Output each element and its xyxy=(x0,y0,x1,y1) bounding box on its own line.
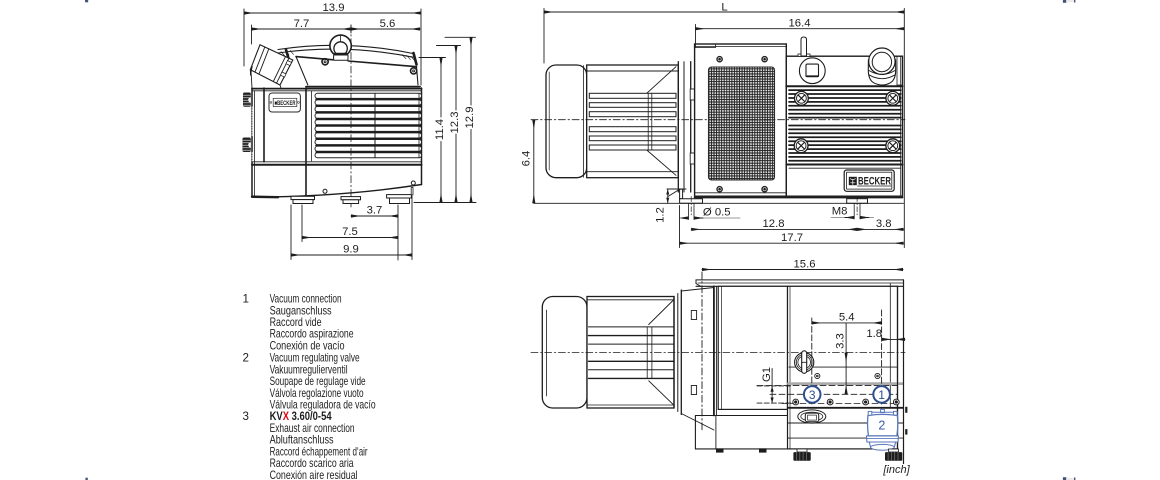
svg-text:17.7: 17.7 xyxy=(781,232,803,244)
svg-text:2: 2 xyxy=(243,352,249,365)
svg-text:G1: G1 xyxy=(761,367,773,382)
svg-text:L: L xyxy=(721,2,727,14)
svg-text:Conexión aire residual: Conexión aire residual xyxy=(270,469,358,480)
svg-text:7.5: 7.5 xyxy=(342,226,358,238)
svg-text:11.4: 11.4 xyxy=(434,119,446,140)
svg-text:[inch]: [inch] xyxy=(882,464,910,476)
svg-text:1.2: 1.2 xyxy=(655,207,667,223)
svg-text:6.4: 6.4 xyxy=(520,151,532,167)
svg-text:12.8: 12.8 xyxy=(763,218,785,230)
svg-text:13.9: 13.9 xyxy=(323,2,345,14)
svg-text:9.9: 9.9 xyxy=(343,244,359,256)
svg-text:3.3: 3.3 xyxy=(835,333,847,349)
svg-text:15.6: 15.6 xyxy=(794,258,816,270)
svg-text:12.3: 12.3 xyxy=(449,112,461,134)
svg-text:7.7: 7.7 xyxy=(294,18,310,30)
svg-text:3: 3 xyxy=(243,410,249,423)
svg-text:1: 1 xyxy=(878,388,885,402)
svg-text:5.6: 5.6 xyxy=(380,18,396,30)
svg-text:BECKER: BECKER xyxy=(858,175,891,187)
svg-text:3.7: 3.7 xyxy=(367,205,383,217)
svg-text:5.4: 5.4 xyxy=(839,311,855,323)
svg-text:12.9: 12.9 xyxy=(464,107,476,129)
svg-text:M8: M8 xyxy=(832,206,848,218)
svg-text:Ø 0.5: Ø 0.5 xyxy=(703,207,731,219)
svg-text:1.8: 1.8 xyxy=(866,328,882,340)
svg-text:■BECKER: ■BECKER xyxy=(275,100,296,107)
svg-text:3.8: 3.8 xyxy=(876,218,892,230)
svg-text:2: 2 xyxy=(878,419,885,433)
svg-text:1: 1 xyxy=(243,293,249,306)
svg-text:Conexión de vacío: Conexión de vacío xyxy=(270,340,345,353)
svg-text:16.4: 16.4 xyxy=(789,18,811,30)
svg-text:3: 3 xyxy=(809,388,816,402)
